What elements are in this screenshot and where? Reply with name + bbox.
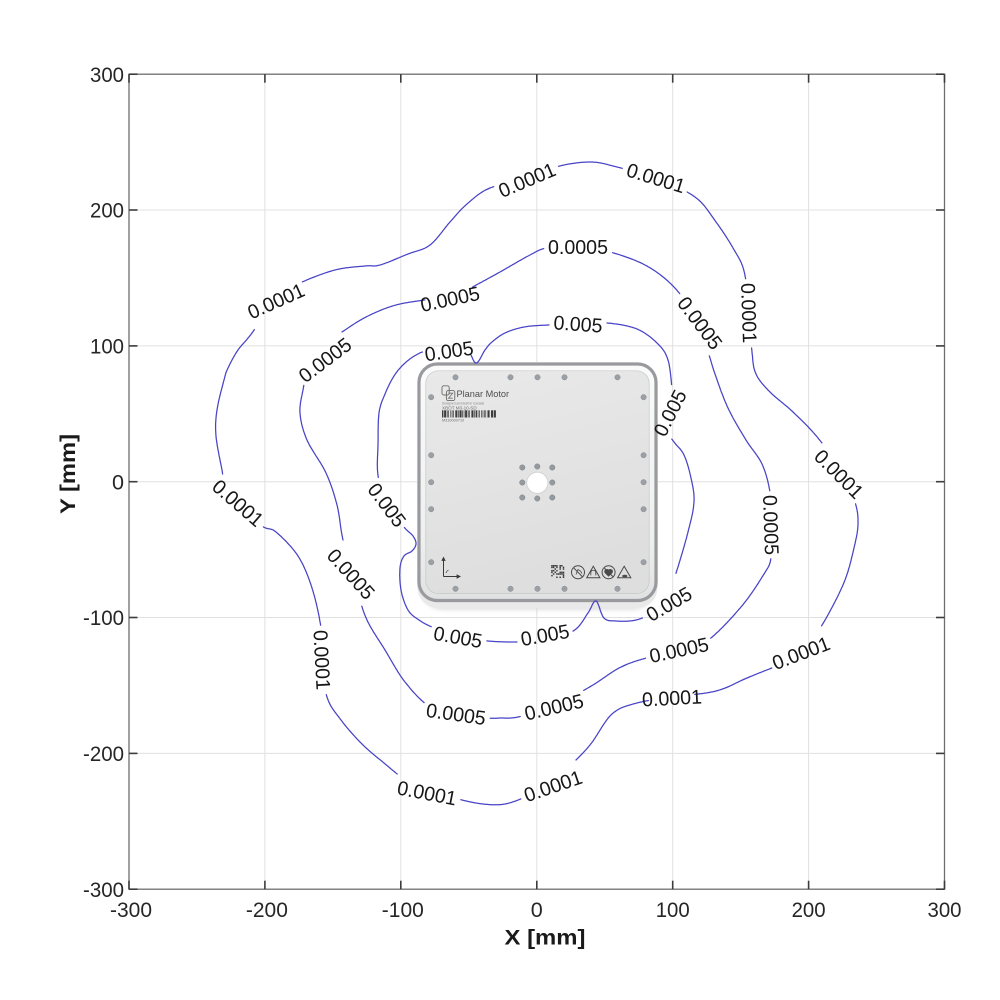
svg-text:-100: -100 <box>83 607 124 630</box>
svg-text:0: 0 <box>531 899 543 922</box>
svg-text:0.005: 0.005 <box>553 312 603 337</box>
svg-text:-200: -200 <box>83 743 124 766</box>
svg-text:200: 200 <box>792 899 826 922</box>
svg-text:100: 100 <box>90 336 124 359</box>
svg-text:200: 200 <box>90 200 124 223</box>
svg-text:Y [mm]: Y [mm] <box>57 434 80 514</box>
svg-text:Planar Motor: Planar Motor <box>457 389 510 399</box>
svg-text:X [mm]: X [mm] <box>505 927 586 950</box>
svg-text:XBOT M3-10-SD: XBOT M3-10-SD <box>442 405 477 410</box>
svg-text:-200: -200 <box>246 899 288 922</box>
svg-text:0.0001: 0.0001 <box>642 686 703 711</box>
svg-text:100: 100 <box>656 899 690 922</box>
svg-text:-300: -300 <box>83 879 124 902</box>
svg-text:0.0005: 0.0005 <box>548 237 608 259</box>
svg-text:M310000710: M310000710 <box>442 419 464 423</box>
svg-text:0.0001: 0.0001 <box>308 630 333 691</box>
svg-text:0.0001: 0.0001 <box>736 283 760 344</box>
svg-text:300: 300 <box>928 899 962 922</box>
svg-text:300: 300 <box>90 64 124 87</box>
svg-text:-300: -300 <box>110 899 152 922</box>
svg-text:-100: -100 <box>382 899 424 922</box>
svg-text:0.0005: 0.0005 <box>758 495 782 556</box>
svg-text:0: 0 <box>112 471 124 494</box>
